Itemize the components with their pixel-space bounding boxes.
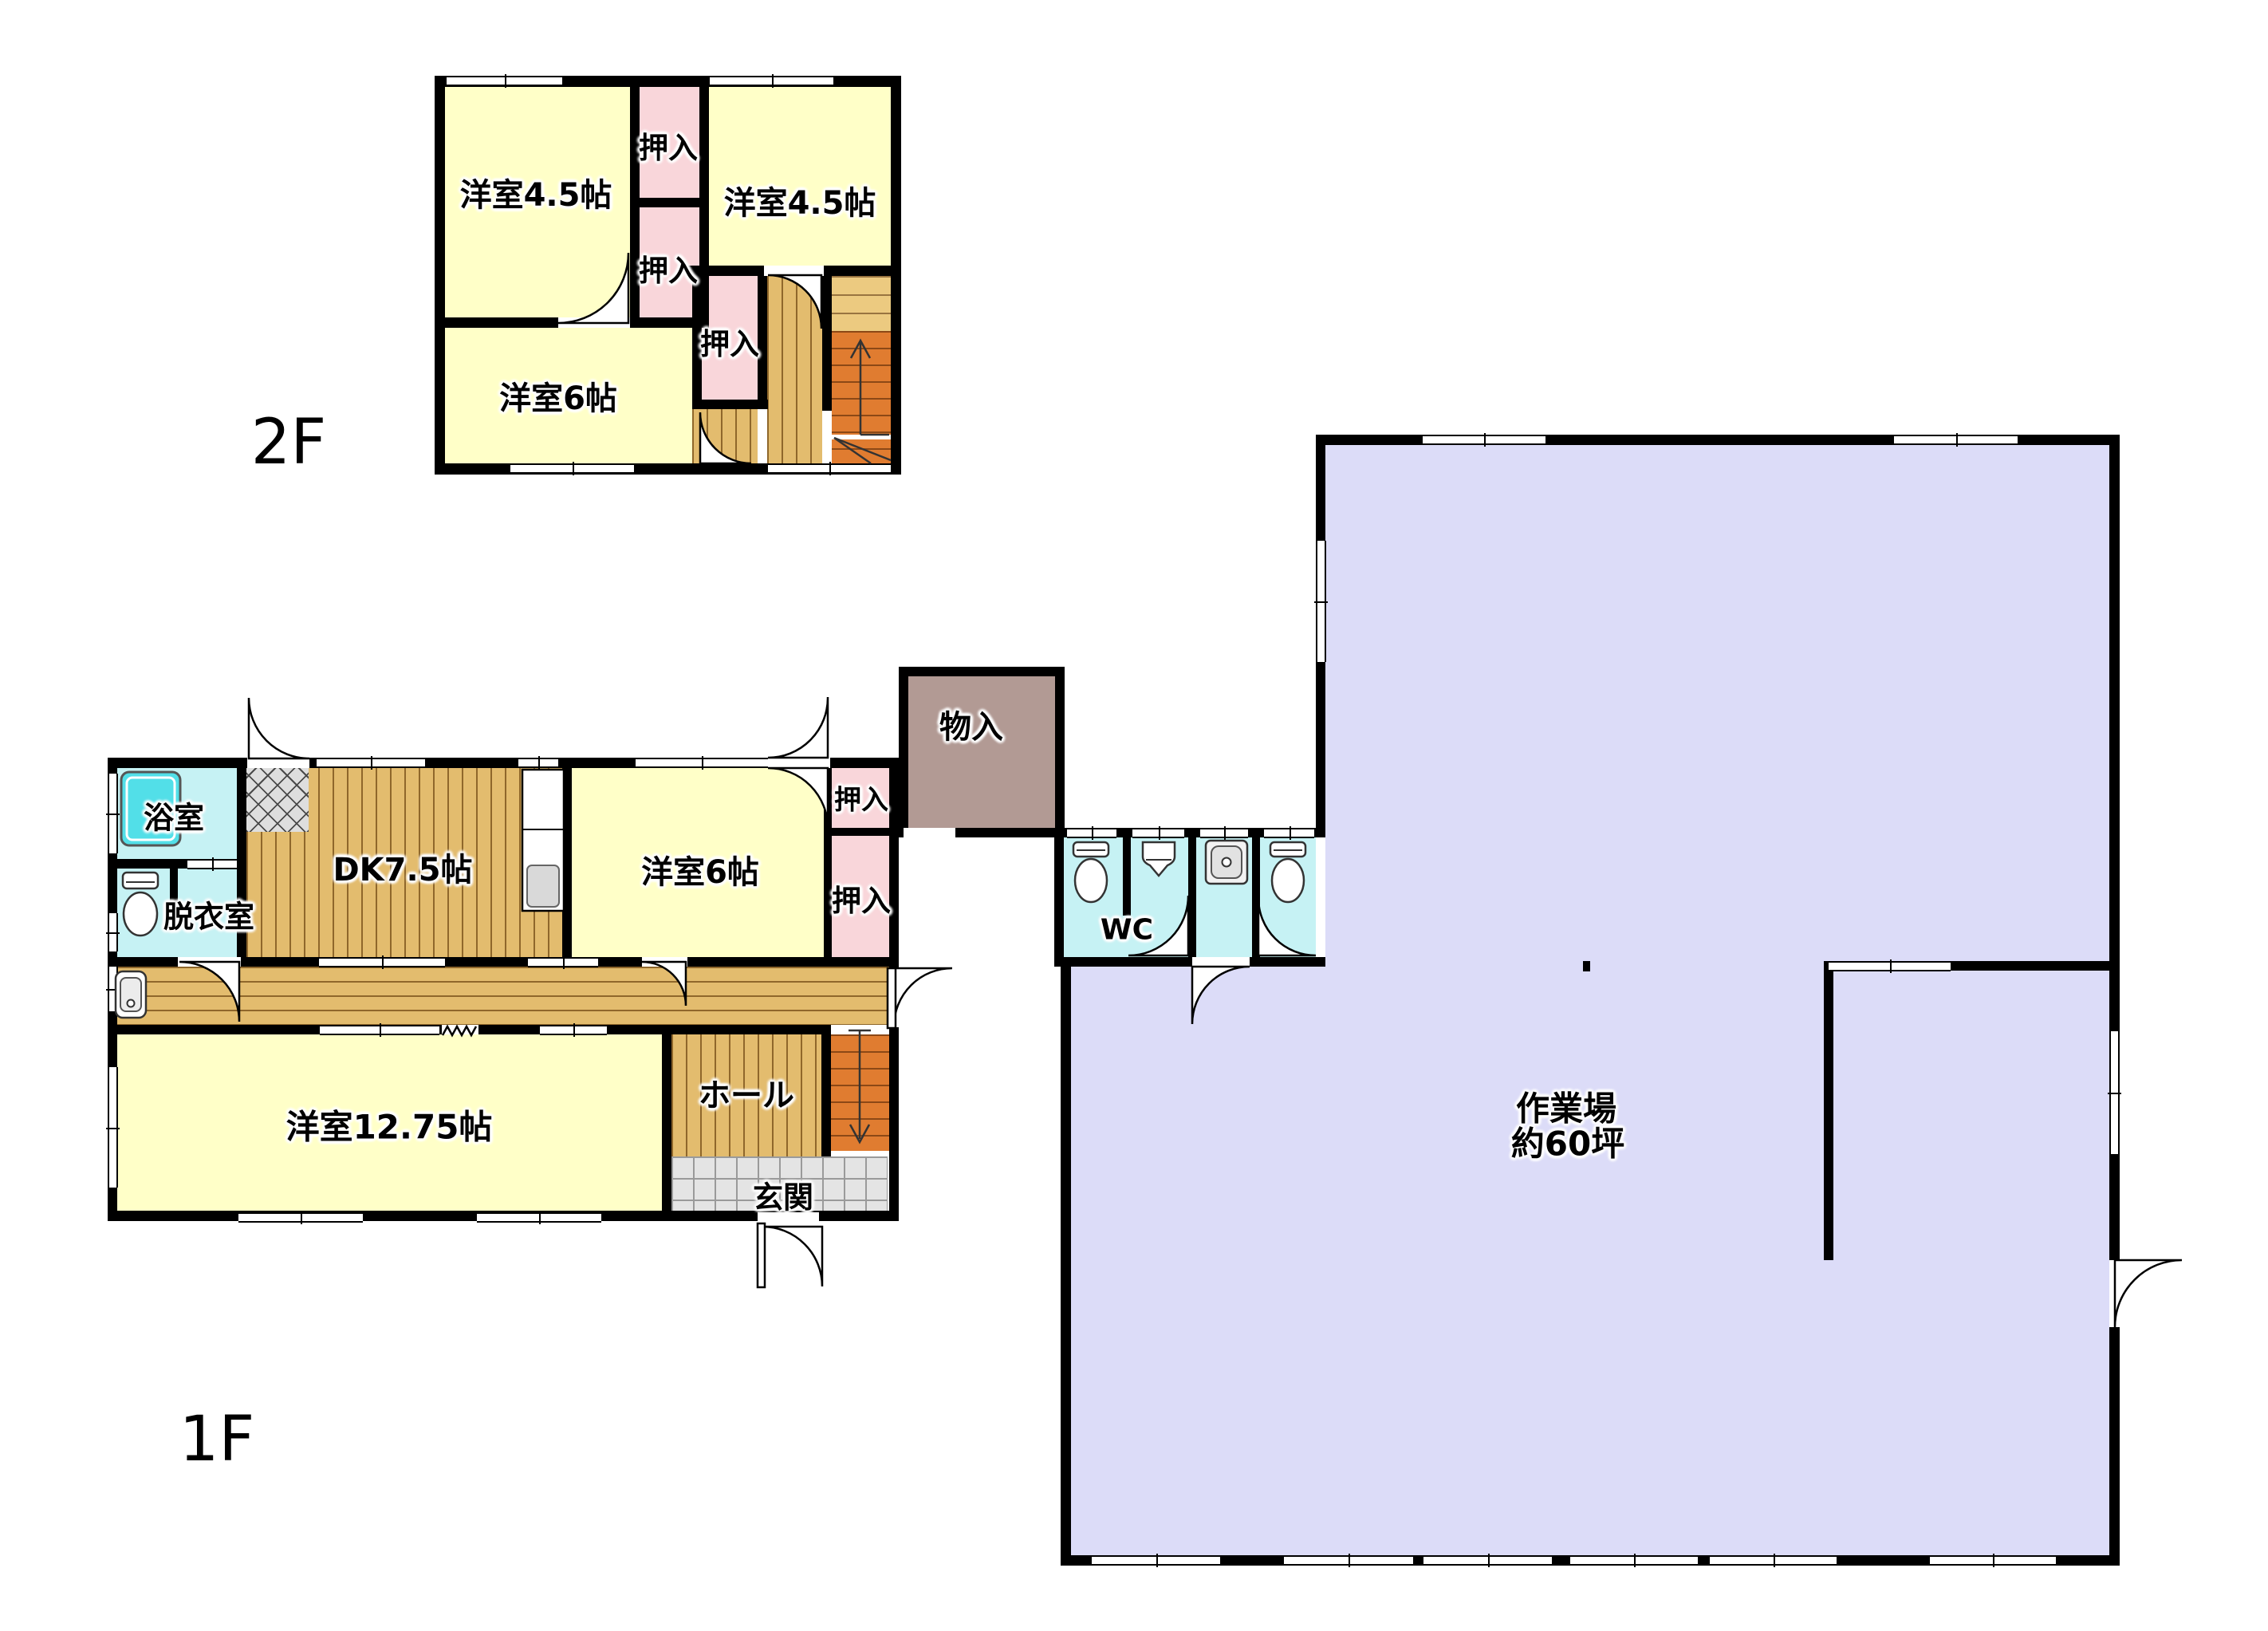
door-opening — [1192, 957, 1250, 967]
window — [1132, 828, 1184, 838]
room-label: WC — [1101, 914, 1153, 947]
room-2f-stair-hall — [767, 276, 822, 463]
kitchen-tile-area — [246, 768, 309, 832]
room-label: 押入 — [834, 778, 888, 817]
corridor — [117, 967, 889, 1025]
wall — [891, 76, 901, 475]
window — [317, 758, 425, 768]
stairs-2f-upper — [832, 276, 891, 331]
wall — [1055, 667, 1065, 837]
door-opening — [764, 266, 824, 276]
room-label: 洋室4.5帖 — [460, 169, 612, 215]
door-arc — [2115, 1260, 2182, 1327]
window — [1264, 828, 1314, 838]
window — [108, 774, 118, 853]
wall — [630, 198, 709, 207]
sliding-door — [319, 957, 445, 967]
window — [1930, 1555, 2056, 1566]
room-label: 押入 — [639, 246, 698, 290]
stair-landing-2f — [832, 435, 891, 439]
wall — [692, 400, 768, 409]
room-workshop-main — [1325, 445, 2109, 1555]
room-label: 洋室12.75帖 — [286, 1101, 493, 1149]
wall — [1054, 828, 1064, 967]
window — [108, 913, 118, 951]
wall — [1824, 961, 1833, 1260]
wall — [662, 1025, 671, 1221]
window — [1570, 1555, 1698, 1566]
wall — [821, 1025, 831, 1156]
sliding-door — [528, 957, 598, 967]
wall — [824, 758, 832, 967]
wall — [1252, 837, 1260, 957]
floor-label-1f: 1F — [179, 1404, 255, 1475]
door-opening — [768, 758, 830, 768]
door-opening — [889, 967, 899, 1027]
wall — [1188, 837, 1196, 957]
wall — [2109, 435, 2120, 1566]
door-arc — [249, 698, 309, 758]
door-arc — [894, 968, 952, 1026]
wall — [1054, 957, 1325, 967]
stair-landing-1f — [831, 1151, 889, 1156]
room-2f-passage — [692, 409, 758, 463]
window — [477, 1212, 601, 1223]
stairs-2f-lower — [832, 331, 891, 463]
window — [768, 463, 891, 474]
room-label: 押入 — [832, 877, 891, 920]
wall — [1123, 837, 1131, 916]
door-opening — [558, 317, 630, 328]
door-opening — [642, 957, 687, 967]
room-label: 玄関 — [753, 1173, 813, 1217]
window — [1829, 961, 1951, 971]
wall — [824, 828, 897, 836]
room-label: 洋室6帖 — [499, 372, 617, 419]
pillar — [1583, 961, 1590, 971]
room-2f-east-4-5 — [709, 87, 891, 266]
room-label: 脱衣室 — [163, 892, 254, 936]
sliding-door — [187, 859, 237, 869]
door-opening — [247, 758, 309, 768]
room-label: ホール — [699, 1070, 794, 1116]
stairs-1f — [831, 1034, 889, 1156]
room-label: 浴室 — [144, 794, 204, 837]
room-label: 押入 — [700, 320, 759, 363]
window — [1284, 1555, 1413, 1566]
room-label: 約60坪 — [1511, 1117, 1624, 1166]
room-storage — [908, 676, 1055, 828]
room-label: 物入 — [939, 701, 1003, 747]
window — [108, 967, 118, 1011]
window — [636, 758, 768, 768]
window — [1067, 828, 1116, 838]
window — [1423, 435, 1545, 445]
window — [447, 76, 562, 86]
window — [238, 1212, 363, 1223]
window — [710, 76, 833, 86]
window — [108, 1067, 118, 1188]
door-opening — [178, 957, 241, 967]
window — [1710, 1555, 1837, 1566]
floor-label-2f: 2F — [251, 407, 327, 479]
wall — [1061, 967, 1071, 1555]
heater-opening — [442, 1025, 478, 1034]
window — [1423, 1555, 1552, 1566]
wall — [435, 76, 445, 475]
wall — [822, 275, 832, 411]
wall — [899, 667, 1065, 676]
window — [1316, 541, 1326, 662]
window — [518, 758, 558, 768]
door-arc — [762, 1227, 822, 1286]
room-label: DK7.5帖 — [333, 844, 472, 890]
wall — [562, 758, 572, 967]
room-label: 洋室4.5帖 — [724, 177, 876, 223]
window — [510, 463, 634, 474]
room-label: 押入 — [639, 124, 698, 167]
window — [2109, 1031, 2120, 1154]
window — [1200, 828, 1248, 838]
wall — [899, 667, 908, 837]
room-workshop-extension — [1071, 967, 1325, 1555]
window — [1894, 435, 2018, 445]
door-opening — [2109, 1260, 2120, 1327]
sliding-door — [320, 1025, 439, 1035]
door-leaf — [758, 1223, 765, 1287]
floorplan: 2F 1F 洋室4.5帖 押入 洋室4.5帖 押入 洋室6帖 押入 浴室 脱衣室… — [0, 0, 2268, 1631]
door-opening — [904, 828, 955, 837]
door-arc — [768, 697, 828, 758]
window — [540, 1025, 607, 1035]
room-label: 洋室6帖 — [641, 846, 759, 892]
window — [1092, 1555, 1220, 1566]
